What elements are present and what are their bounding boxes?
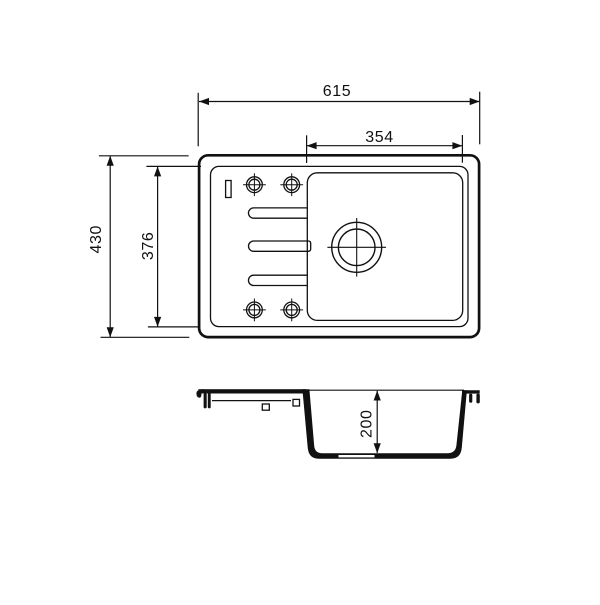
svg-text:615: 615 (323, 83, 352, 100)
svg-text:200: 200 (359, 410, 376, 439)
svg-text:430: 430 (88, 225, 105, 254)
svg-text:376: 376 (140, 232, 157, 260)
svg-text:354: 354 (365, 129, 394, 146)
